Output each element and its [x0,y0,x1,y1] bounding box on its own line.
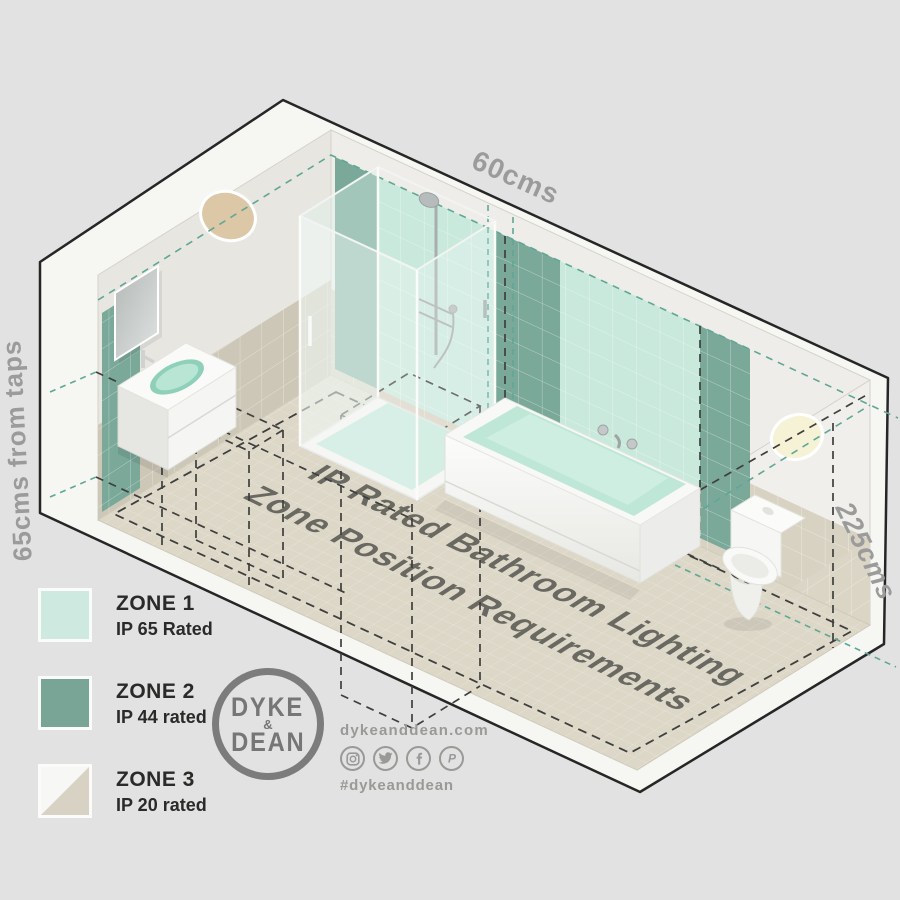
zone2-label: ZONE 2 [116,679,207,705]
zone3-label: ZONE 3 [116,767,207,793]
zone1-rating: IP 65 Rated [116,617,213,642]
svg-text:P: P [447,752,456,766]
zone1-swatch [38,588,92,642]
dyke-and-dean-logo: DYKE & DEAN [212,668,324,780]
dim-left-label: 65cms from taps [0,339,38,562]
zone3-swatch [38,764,92,818]
logo-text-dean: DEAN [231,730,305,754]
zone2-swatch [38,676,92,730]
zone3-rating: IP 20 rated [116,793,207,818]
zone1-label: ZONE 1 [116,591,213,617]
facebook-icon[interactable] [406,746,431,771]
hashtag-label: #dykeanddean [340,777,489,794]
logo-text-dyke: DYKE [231,695,304,719]
page: { "diagram": { "floor_title_line1": "IP … [0,0,900,900]
branding-block: dykeanddean.com P #dykeanddean [340,722,489,794]
instagram-icon[interactable] [340,746,365,771]
zone2-rating: IP 44 rated [116,705,207,730]
social-icons: P [340,746,489,771]
pinterest-icon[interactable]: P [439,746,464,771]
website-link[interactable]: dykeanddean.com [340,722,489,739]
legend-item-zone1: ZONE 1 IP 65 Rated [38,588,338,642]
twitter-icon[interactable] [373,746,398,771]
